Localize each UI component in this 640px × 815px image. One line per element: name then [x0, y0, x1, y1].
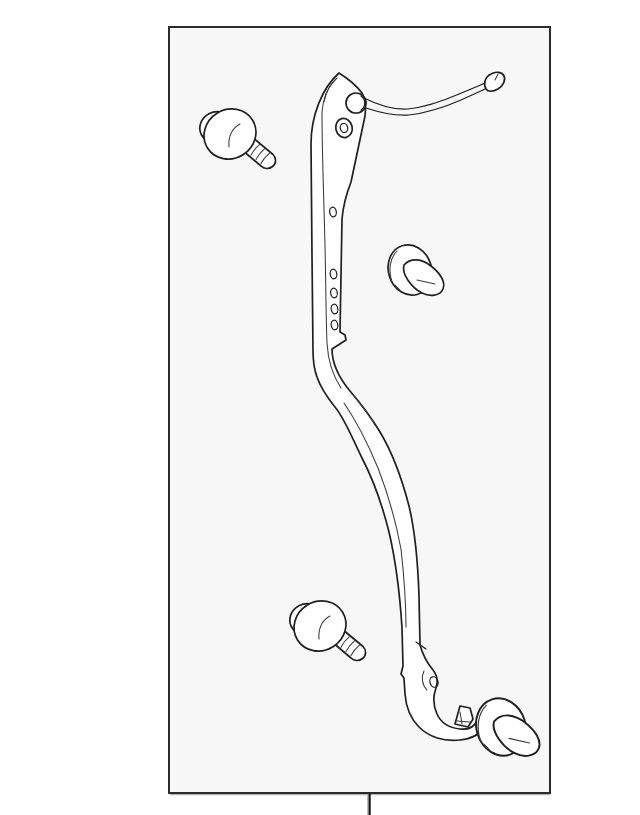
parts-diagram: [40, 16, 640, 815]
parts-diagram-canvas: [40, 16, 640, 815]
bottom-center-callout-tick: [368, 794, 370, 815]
ball-stud: [346, 93, 366, 113]
